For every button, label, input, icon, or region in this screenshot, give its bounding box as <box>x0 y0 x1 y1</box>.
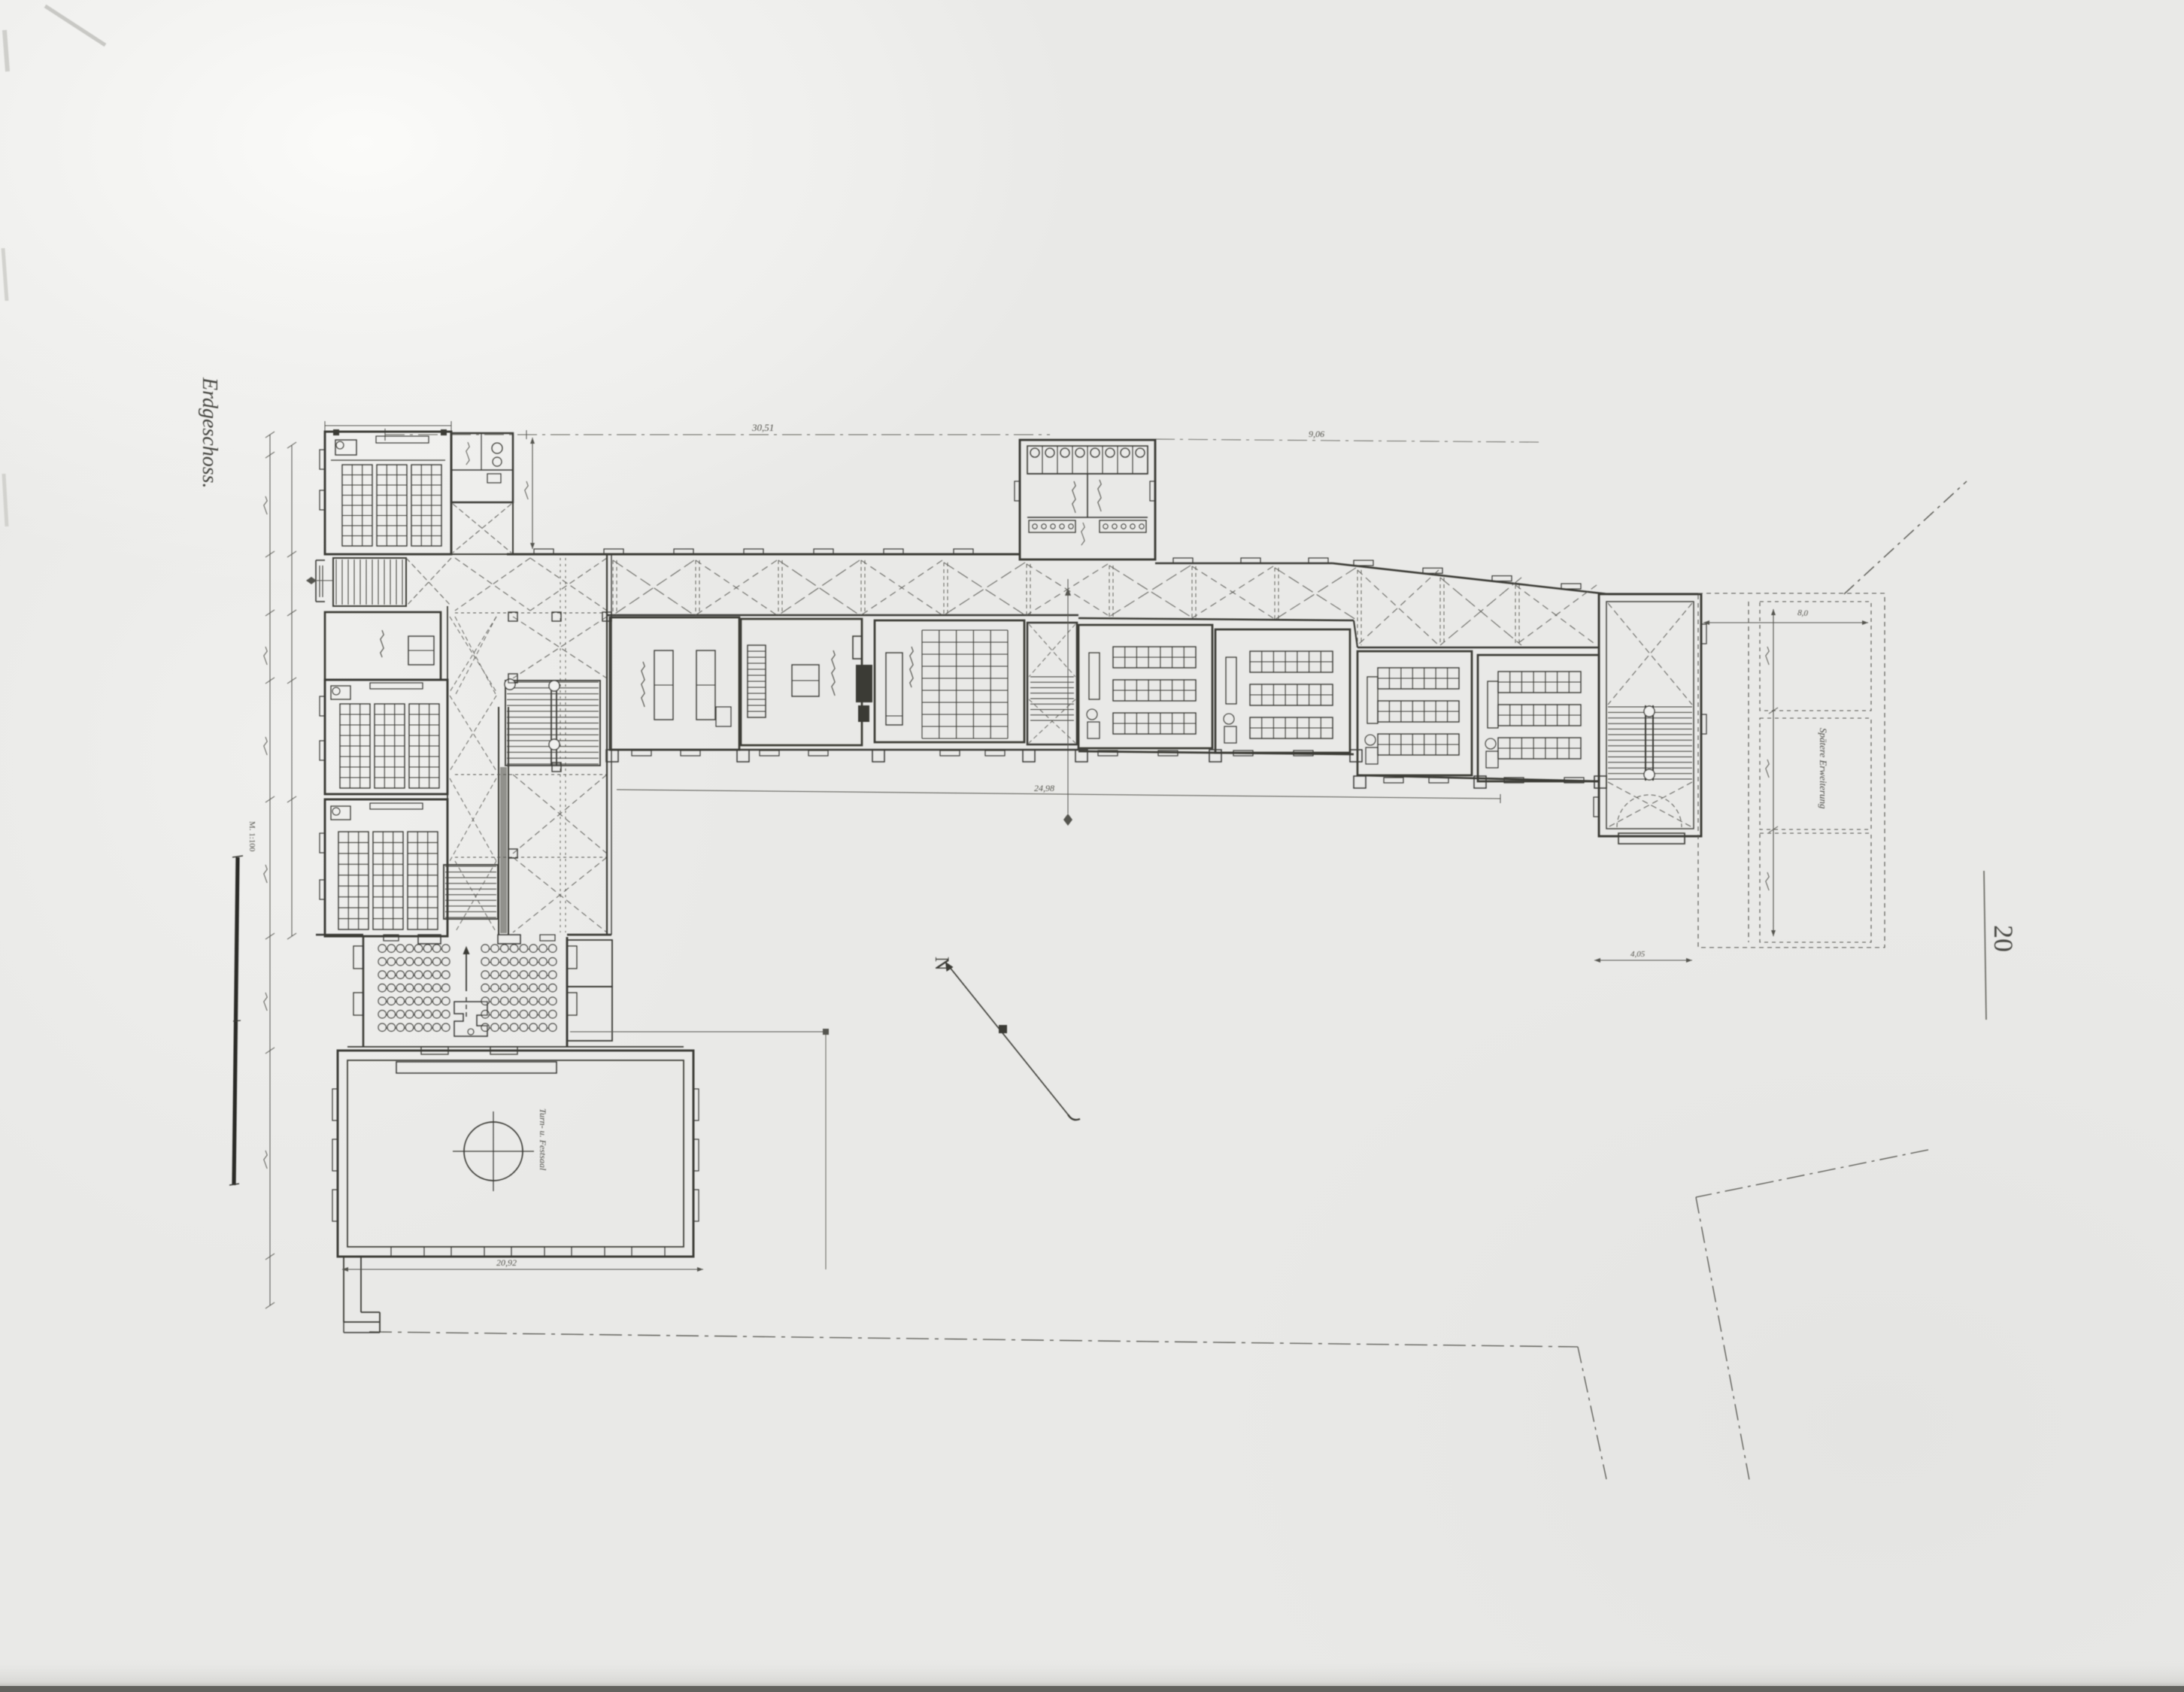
svg-text:20: 20 <box>1988 925 2019 952</box>
svg-text:N: N <box>931 957 953 971</box>
svg-text:M. 1:100: M. 1:100 <box>247 821 256 852</box>
svg-text:20,92: 20,92 <box>496 1257 517 1268</box>
svg-text:Erdgeschoss.: Erdgeschoss. <box>198 377 221 489</box>
svg-text:8,0: 8,0 <box>1797 608 1809 618</box>
svg-text:24,98: 24,98 <box>1034 783 1054 793</box>
svg-text:9,06: 9,06 <box>1309 429 1324 439</box>
svg-text:Turn- u. Festsaal: Turn- u. Festsaal <box>538 1108 548 1171</box>
svg-text:Spätere Erweiterung: Spätere Erweiterung <box>1818 728 1829 809</box>
svg-text:30,51: 30,51 <box>751 422 774 433</box>
svg-text:4,05: 4,05 <box>1630 950 1646 959</box>
